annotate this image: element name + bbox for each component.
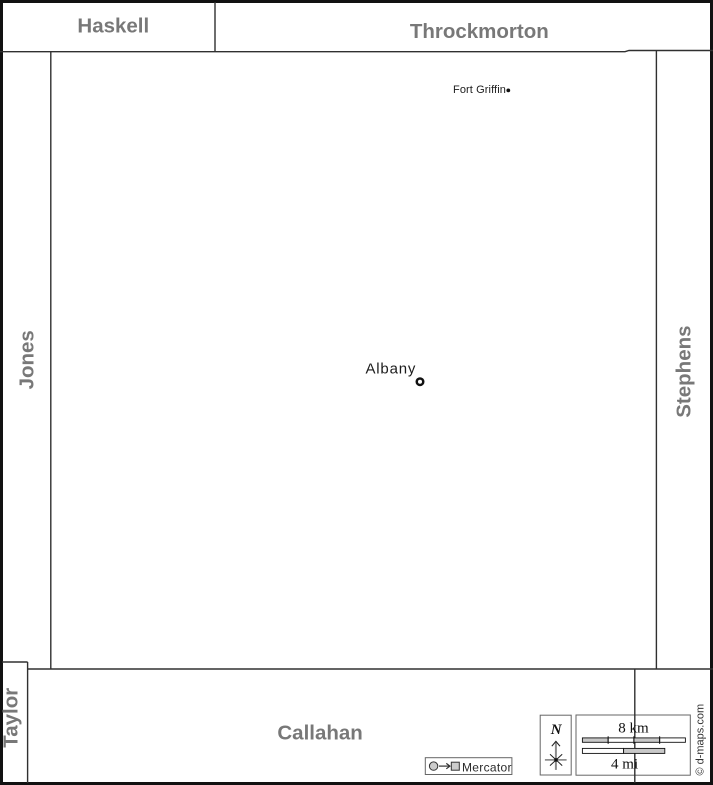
svg-text:Fort Griffin: Fort Griffin	[453, 84, 506, 96]
svg-text:Haskell: Haskell	[77, 15, 149, 38]
svg-text:8 km: 8 km	[618, 721, 649, 737]
svg-text:N: N	[550, 722, 563, 738]
svg-text:Throckmorton: Throckmorton	[410, 20, 549, 43]
svg-text:Stephens: Stephens	[673, 325, 696, 417]
svg-text:Albany: Albany	[366, 361, 417, 378]
svg-text:4 mi: 4 mi	[611, 756, 638, 772]
svg-text:Jones: Jones	[15, 330, 38, 389]
svg-text:© d-maps.com: © d-maps.com	[695, 704, 707, 776]
svg-text:Taylor: Taylor	[0, 688, 22, 748]
svg-text:Callahan: Callahan	[277, 722, 362, 745]
svg-text:Mercator: Mercator	[462, 760, 512, 774]
